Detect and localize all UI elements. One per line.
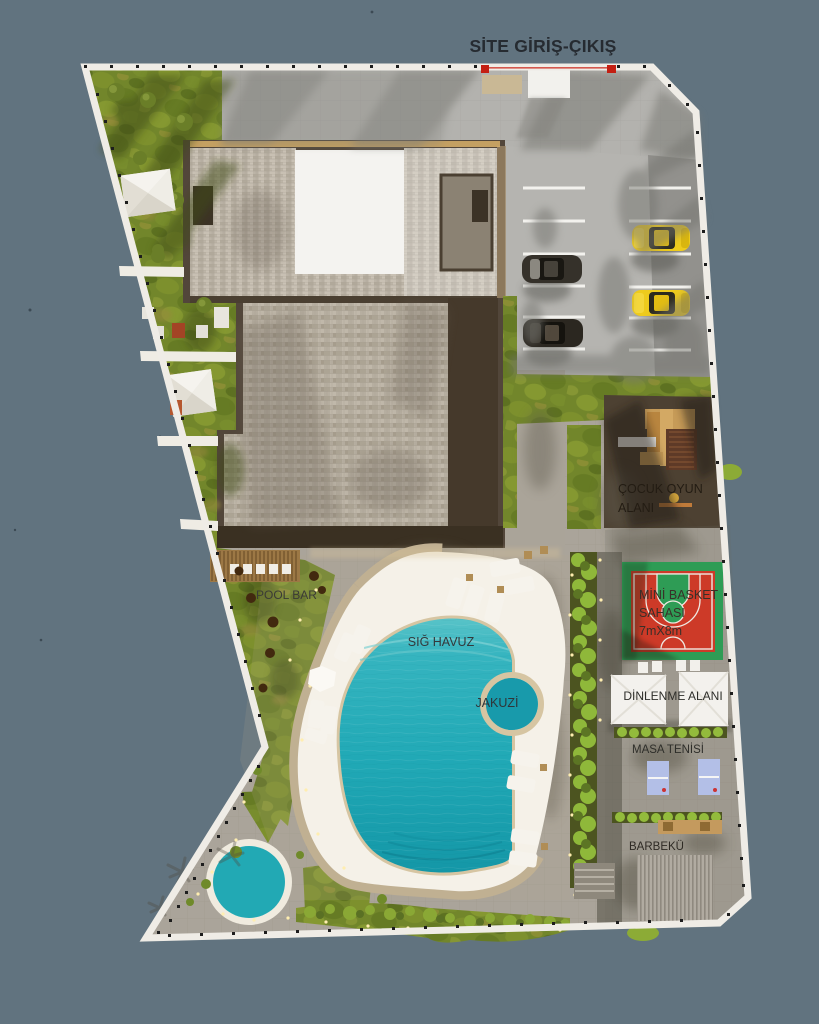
- svg-text:SİTE GİRİŞ-ÇIKIŞ: SİTE GİRİŞ-ÇIKIŞ: [469, 36, 616, 56]
- svg-text:MASA TENİSİ: MASA TENİSİ: [632, 743, 704, 756]
- svg-text:POOL BAR: POOL BAR: [256, 588, 317, 602]
- svg-text:JAKUZİ: JAKUZİ: [475, 696, 518, 710]
- svg-text:7mX8m: 7mX8m: [639, 624, 682, 638]
- svg-text:SIĞ HAVUZ: SIĞ HAVUZ: [408, 634, 475, 649]
- svg-text:DİNLENME ALANI: DİNLENME ALANI: [623, 689, 722, 703]
- svg-text:MİNİ BASKET: MİNİ BASKET: [639, 588, 719, 602]
- svg-text:BARBEKÜ: BARBEKÜ: [629, 841, 684, 853]
- svg-text:ALANI: ALANI: [618, 501, 654, 515]
- svg-text:SAHASI: SAHASI: [639, 606, 685, 620]
- svg-text:ÇOCUK OYUN: ÇOCUK OYUN: [618, 482, 703, 496]
